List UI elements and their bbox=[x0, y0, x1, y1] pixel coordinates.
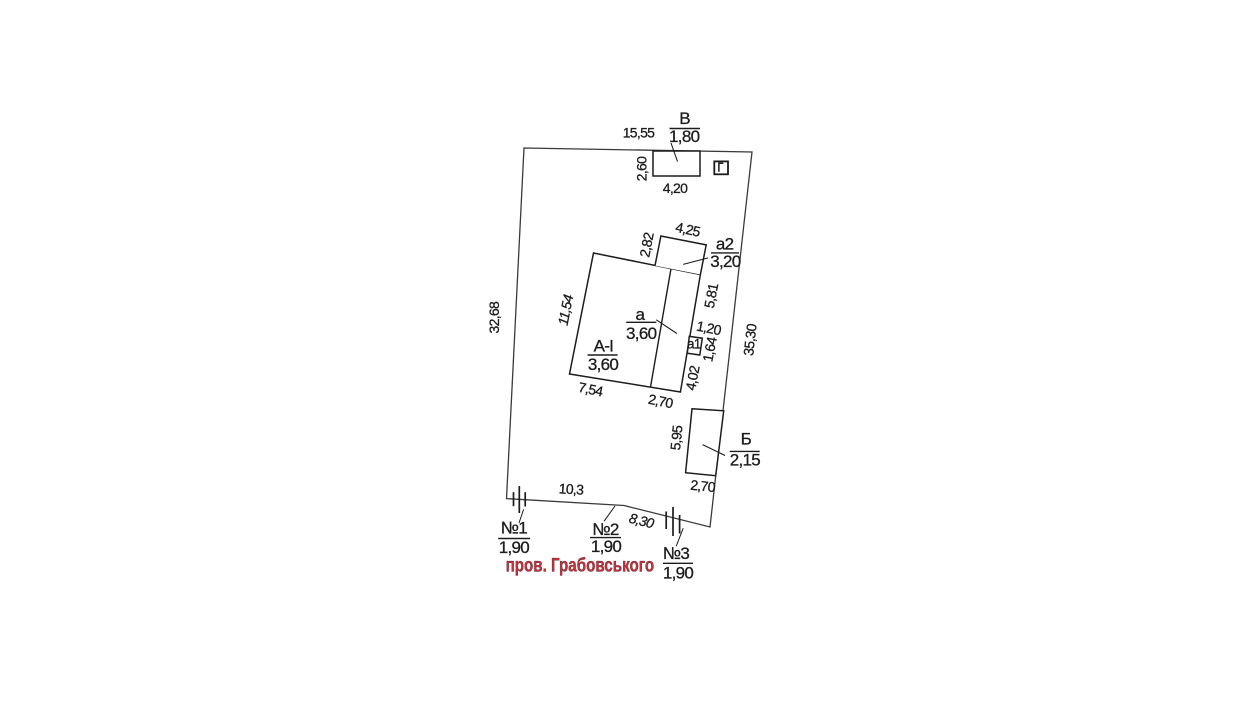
svg-text:№3: №3 bbox=[663, 544, 690, 563]
svg-text:А-І: А-І bbox=[594, 337, 614, 356]
svg-text:4,20: 4,20 bbox=[663, 180, 688, 196]
svg-text:1,80: 1,80 bbox=[669, 127, 700, 146]
svg-text:15,55: 15,55 bbox=[623, 124, 655, 140]
svg-text:32,68: 32,68 bbox=[486, 301, 502, 333]
svg-text:1,90: 1,90 bbox=[499, 538, 530, 557]
svg-text:В: В bbox=[679, 109, 690, 128]
svg-text:3,20: 3,20 bbox=[710, 252, 741, 271]
svg-text:3,60: 3,60 bbox=[588, 355, 619, 374]
svg-text:5,95: 5,95 bbox=[667, 424, 685, 451]
svg-text:2,15: 2,15 bbox=[730, 450, 761, 469]
svg-text:2,60: 2,60 bbox=[634, 156, 650, 181]
svg-text:пров. Грабовського: пров. Грабовського bbox=[506, 556, 654, 577]
svg-text:а2: а2 bbox=[716, 234, 734, 253]
svg-text:№1: №1 bbox=[501, 519, 528, 538]
svg-text:2,70: 2,70 bbox=[690, 477, 717, 495]
svg-text:3,60: 3,60 bbox=[626, 324, 657, 343]
svg-text:а1: а1 bbox=[687, 337, 701, 352]
svg-text:1,90: 1,90 bbox=[591, 537, 622, 556]
svg-text:1,90: 1,90 bbox=[663, 564, 694, 583]
svg-text:а: а bbox=[636, 305, 646, 324]
svg-text:10,3: 10,3 bbox=[558, 480, 584, 497]
svg-text:Б: Б bbox=[741, 430, 752, 449]
